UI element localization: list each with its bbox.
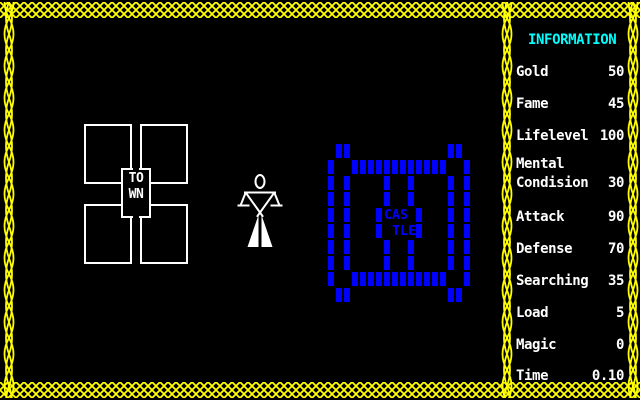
border-separator-chain xyxy=(501,2,513,398)
border-top-lattice xyxy=(0,2,640,18)
castle-block xyxy=(416,224,422,238)
castle-block xyxy=(440,272,446,286)
castle-block xyxy=(328,256,334,270)
stat-row-load: Load 5 xyxy=(516,305,624,321)
castle-block xyxy=(408,192,414,206)
stat-label: Attack xyxy=(516,209,564,225)
castle-label-char: T xyxy=(392,224,400,240)
border-right-chain xyxy=(627,2,639,398)
castle-block xyxy=(384,160,390,174)
castle-block xyxy=(368,272,374,286)
castle-block xyxy=(352,160,358,174)
castle-block xyxy=(416,160,422,174)
castle-block xyxy=(344,224,350,238)
stat-value: 30 xyxy=(608,175,624,191)
castle-block xyxy=(448,288,454,302)
castle-block xyxy=(416,272,422,286)
player-figure[interactable] xyxy=(235,170,285,250)
castle-block xyxy=(424,272,430,286)
player-right-leg xyxy=(262,215,273,247)
stat-label: Mental xyxy=(516,156,624,172)
castle-block xyxy=(344,240,350,254)
stat-value: 90 xyxy=(608,209,624,225)
castle-block xyxy=(344,192,350,206)
player-head xyxy=(256,175,265,188)
player-left-leg xyxy=(248,215,259,247)
castle-block xyxy=(328,224,334,238)
castle-block xyxy=(448,240,454,254)
stat-value: 0.10 xyxy=(592,368,624,384)
castle-block xyxy=(384,176,390,190)
castle-block xyxy=(408,272,414,286)
castle-block xyxy=(424,160,430,174)
castle-block xyxy=(464,224,470,238)
castle-block xyxy=(400,272,406,286)
castle-block xyxy=(448,192,454,206)
castle-block xyxy=(464,192,470,206)
stat-value: 35 xyxy=(608,273,624,289)
stat-value: 5 xyxy=(616,305,624,321)
stat-row-gold: Gold 50 xyxy=(516,64,624,80)
castle-label-char: C xyxy=(384,208,392,224)
castle-block xyxy=(376,224,382,238)
castle-block xyxy=(448,176,454,190)
town-block xyxy=(140,124,188,184)
info-panel: INFORMATION Gold 50 Fame 45 Lifelevel 10… xyxy=(513,18,627,382)
castle-block xyxy=(448,256,454,270)
info-title: INFORMATION xyxy=(528,32,616,48)
castle-block xyxy=(344,288,350,302)
castle-block xyxy=(336,288,342,302)
stat-label: Fame xyxy=(516,96,548,112)
stat-label: Lifelevel xyxy=(516,128,588,144)
castle-block xyxy=(376,160,382,174)
castle-block xyxy=(328,240,334,254)
castle-block xyxy=(328,176,334,190)
castle-block xyxy=(384,256,390,270)
castle-block xyxy=(344,176,350,190)
town-block xyxy=(140,204,188,264)
castle-block xyxy=(384,192,390,206)
stat-label: Condision xyxy=(516,175,588,191)
stat-row-time: Time 0.10 xyxy=(516,368,624,384)
castle-block xyxy=(344,208,350,222)
border-bottom-lattice xyxy=(0,382,640,398)
stat-label: Defense xyxy=(516,241,572,257)
stat-value: 70 xyxy=(608,241,624,257)
castle-block xyxy=(360,272,366,286)
castle[interactable]: CASTLE xyxy=(328,144,472,304)
castle-block xyxy=(432,272,438,286)
stat-label: Load xyxy=(516,305,548,321)
border-left-chain xyxy=(3,2,15,398)
castle-block xyxy=(440,160,446,174)
castle-block xyxy=(464,176,470,190)
castle-block xyxy=(344,144,350,158)
castle-label-char: S xyxy=(400,208,408,224)
castle-block xyxy=(464,208,470,222)
castle-block xyxy=(368,160,374,174)
castle-block xyxy=(392,160,398,174)
castle-block xyxy=(376,272,382,286)
town-street-gap xyxy=(133,216,139,218)
castle-block xyxy=(336,144,342,158)
castle-block xyxy=(448,224,454,238)
stat-value: 50 xyxy=(608,64,624,80)
stat-row-magic: Magic 0 xyxy=(516,337,624,353)
stat-value: 100 xyxy=(600,128,624,144)
stat-value: 45 xyxy=(608,96,624,112)
castle-block xyxy=(456,288,462,302)
stat-row-defense: Defense 70 xyxy=(516,241,624,257)
castle-block xyxy=(328,208,334,222)
stat-row-fame: Fame 45 xyxy=(516,96,624,112)
town-block xyxy=(84,124,132,184)
castle-label-char: A xyxy=(392,208,400,224)
stat-row-searching: Searching 35 xyxy=(516,273,624,289)
castle-block xyxy=(464,272,470,286)
town-center-box xyxy=(121,168,151,218)
castle-block xyxy=(464,256,470,270)
castle-block xyxy=(408,176,414,190)
castle-block xyxy=(448,144,454,158)
castle-block xyxy=(408,160,414,174)
castle-block xyxy=(328,160,334,174)
castle-block xyxy=(392,272,398,286)
game-screen: TO WN CASTLE INFORMATION Gold 50 Fame 45 xyxy=(0,0,640,400)
castle-block xyxy=(448,208,454,222)
castle-block xyxy=(360,160,366,174)
stat-value: 0 xyxy=(616,337,624,353)
castle-block xyxy=(464,240,470,254)
castle-block xyxy=(384,272,390,286)
player-torso xyxy=(246,193,274,216)
stat-label: Time xyxy=(516,368,548,384)
castle-label-char: E xyxy=(408,224,416,240)
castle-block xyxy=(384,240,390,254)
stat-row-lifelevel: Lifelevel 100 xyxy=(516,128,624,144)
castle-block xyxy=(344,256,350,270)
stat-label: Gold xyxy=(516,64,548,80)
castle-block xyxy=(376,208,382,222)
stat-row-attack: Attack 90 xyxy=(516,209,624,225)
castle-block xyxy=(328,272,334,286)
castle-block xyxy=(352,272,358,286)
town-street-gap xyxy=(133,168,139,170)
castle-block xyxy=(464,160,470,174)
castle-block xyxy=(416,208,422,222)
castle-block xyxy=(400,160,406,174)
castle-block xyxy=(408,256,414,270)
town-label: TO WN xyxy=(121,171,151,203)
castle-block xyxy=(408,240,414,254)
castle-label-char: L xyxy=(400,224,408,240)
stat-label: Magic xyxy=(516,337,556,353)
castle-block xyxy=(456,144,462,158)
castle-block xyxy=(328,192,334,206)
castle-block xyxy=(432,160,438,174)
town-block xyxy=(84,204,132,264)
stat-row-mental-condision: Mental Condision 30 xyxy=(516,156,624,191)
stat-label: Searching xyxy=(516,273,588,289)
